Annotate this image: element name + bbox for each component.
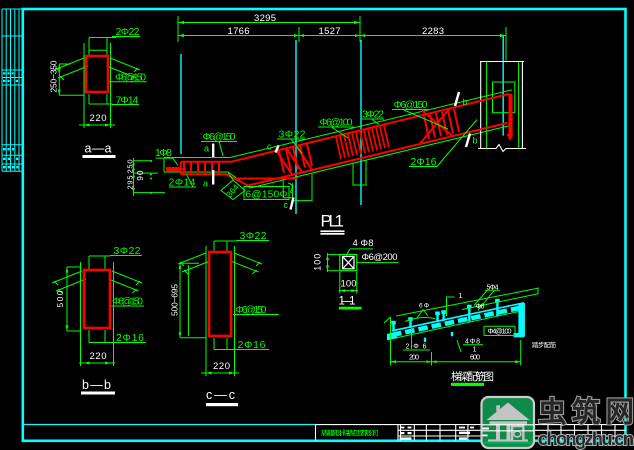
svg-text:295: 295 [126,176,135,190]
svg-text:200: 200 [409,355,419,362]
svg-text:3Φ22: 3Φ22 [240,230,267,242]
svg-text:Φ6@150: Φ6@150 [236,304,267,316]
svg-text:Φ6@200: Φ6@200 [362,252,398,263]
svg-text:虫筑网: 虫筑网 [538,397,634,429]
svg-text:1766: 1766 [228,26,250,37]
svg-text:Φ6@150: Φ6@150 [203,131,236,143]
svg-text:2Φ16: 2Φ16 [238,339,266,351]
svg-text:a: a [204,144,209,154]
svg-text:Φ6@100: Φ6@100 [320,117,353,129]
svg-text:Φ4@100: Φ4@100 [488,326,512,335]
svg-text:220: 220 [90,351,107,362]
svg-text:1: 1 [473,347,477,354]
svg-text:某某建筑设计院某某工程有限公司: 某某建筑设计院某某工程有限公司 [321,428,379,437]
svg-text:220: 220 [90,113,107,124]
svg-text:c—c: c—c [206,388,235,402]
svg-text:90: 90 [136,170,145,181]
svg-text:Φ6@150: Φ6@150 [394,99,428,111]
svg-text:Φ8: Φ8 [476,304,485,311]
svg-text:100: 100 [313,254,323,271]
svg-text:b: b [473,136,478,146]
svg-text:c: c [284,200,289,210]
svg-text:2283: 2283 [422,26,444,37]
svg-text:b—b: b—b [82,378,111,392]
svg-text:PL1: PL1 [321,212,345,231]
svg-text:6@150Φ: 6@150Φ [246,190,288,201]
svg-text:Φ6@150: Φ6@150 [115,72,146,84]
svg-text:250: 250 [126,160,135,174]
svg-text:chongzhu.cn: chongzhu.cn [538,428,634,449]
svg-text:3Φ22: 3Φ22 [279,129,306,141]
svg-text:500: 500 [55,290,65,307]
svg-text:4 Φ8: 4 Φ8 [353,238,374,249]
svg-text:7Φ14: 7Φ14 [116,95,139,107]
svg-text:1: 1 [459,293,463,300]
svg-text:2Φ22: 2Φ22 [116,26,140,38]
svg-text:250~350: 250~350 [49,60,59,92]
svg-text:b: b [463,97,468,107]
svg-text:c: c [267,142,272,152]
svg-text:2Φ16: 2Φ16 [116,332,144,344]
svg-text:a—a: a—a [85,142,112,156]
svg-text:2Φ6: 2Φ6 [406,343,427,350]
svg-text:梯梁配筋图: 梯梁配筋图 [451,370,494,383]
svg-text:220: 220 [213,361,230,372]
svg-text:1Φ8: 1Φ8 [155,147,172,159]
svg-text:Φ6@150: Φ6@150 [112,296,143,308]
svg-text:1527: 1527 [319,26,341,37]
svg-text:6Φ: 6Φ [419,303,429,310]
svg-text:3Φ22: 3Φ22 [362,109,384,121]
svg-text:100: 100 [341,279,357,290]
svg-text:3Φ22: 3Φ22 [114,245,141,257]
svg-text:踏步配筋: 踏步配筋 [532,340,556,349]
svg-text:2Φ16: 2Φ16 [411,156,437,168]
svg-text:500~695: 500~695 [170,284,180,316]
svg-text:4Φ8: 4Φ8 [465,339,480,346]
svg-text:2Φ14: 2Φ14 [169,177,196,189]
svg-text:1—1: 1—1 [339,296,356,308]
svg-text:600: 600 [470,355,480,362]
svg-text:3295: 3295 [254,13,276,24]
svg-text:5Φ4: 5Φ4 [487,284,499,291]
svg-text:a: a [203,179,208,189]
